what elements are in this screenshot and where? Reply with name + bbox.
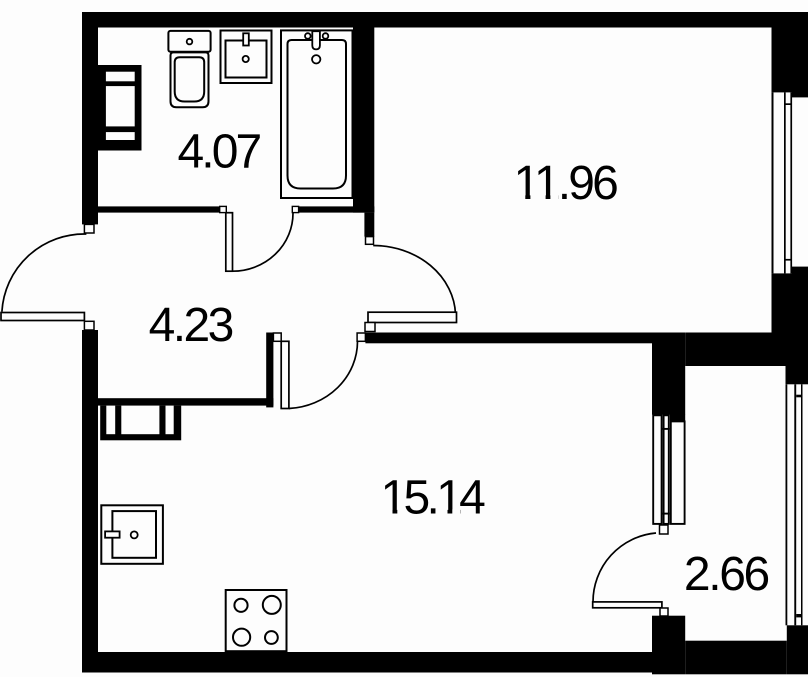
svg-text:4.07: 4.07 [177, 126, 260, 179]
svg-text:4.23: 4.23 [149, 299, 233, 352]
svg-text:2.66: 2.66 [684, 548, 769, 601]
svg-text:11.96: 11.96 [514, 157, 618, 210]
svg-text:15.14: 15.14 [380, 472, 485, 525]
